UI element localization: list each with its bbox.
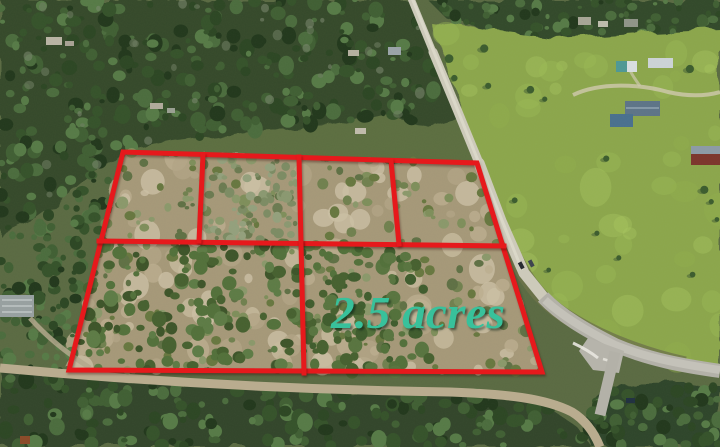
bottom-row-divider: [301, 243, 304, 373]
aerial-photo: 2.5 acres: [0, 0, 720, 447]
acreage-label: 2.5 acres: [330, 287, 505, 338]
photo-grain: [0, 0, 720, 447]
top-row-divider-2: [299, 157, 301, 243]
